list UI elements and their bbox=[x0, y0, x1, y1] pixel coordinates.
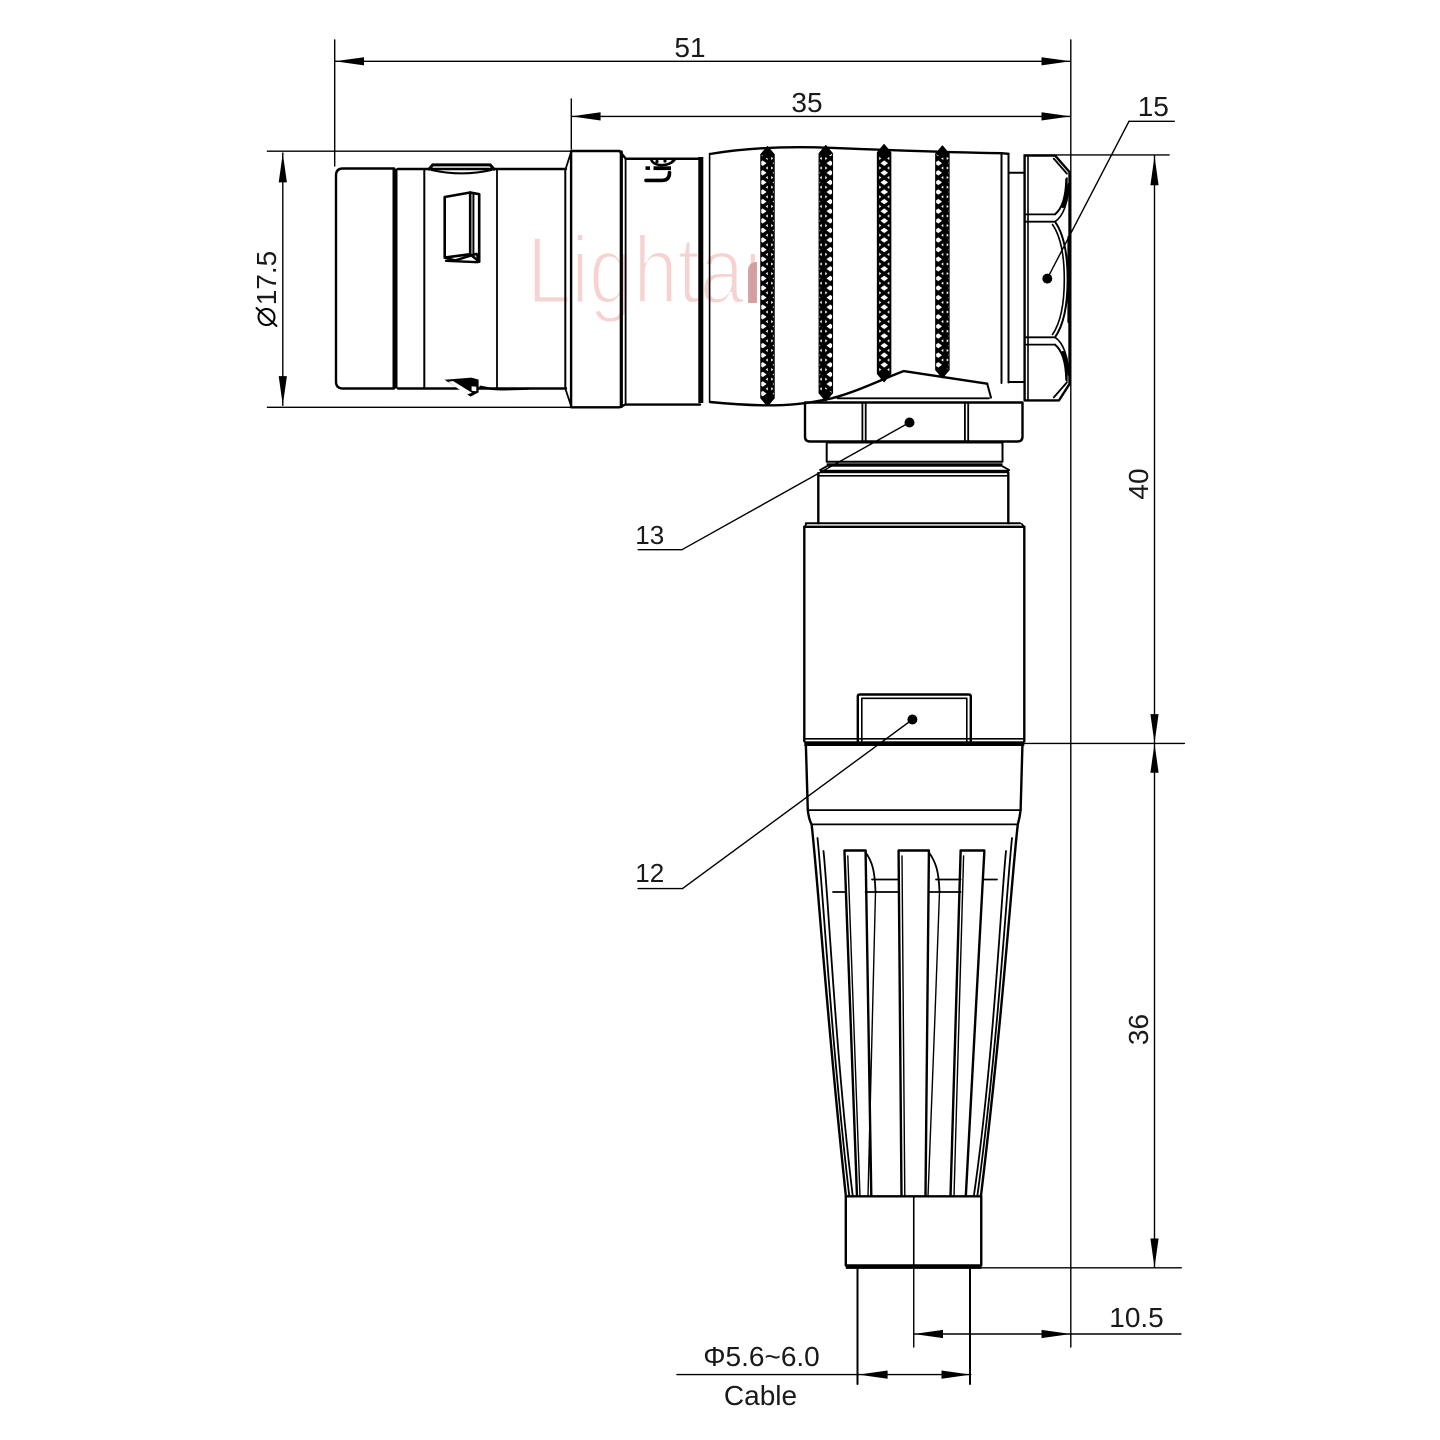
svg-text:13: 13 bbox=[635, 520, 664, 550]
svg-text:36: 36 bbox=[1123, 1014, 1154, 1045]
svg-text:Cable: Cable bbox=[724, 1380, 797, 1411]
svg-text:Φ5.6~6.0: Φ5.6~6.0 bbox=[703, 1341, 820, 1372]
svg-text:12: 12 bbox=[635, 858, 664, 888]
svg-text:10.5: 10.5 bbox=[1109, 1302, 1164, 1333]
svg-text:17.5: 17.5 bbox=[251, 251, 282, 306]
svg-text:35: 35 bbox=[791, 87, 822, 118]
svg-text:15: 15 bbox=[1138, 91, 1169, 122]
svg-text:40: 40 bbox=[1123, 468, 1154, 499]
svg-text:51: 51 bbox=[674, 32, 705, 63]
